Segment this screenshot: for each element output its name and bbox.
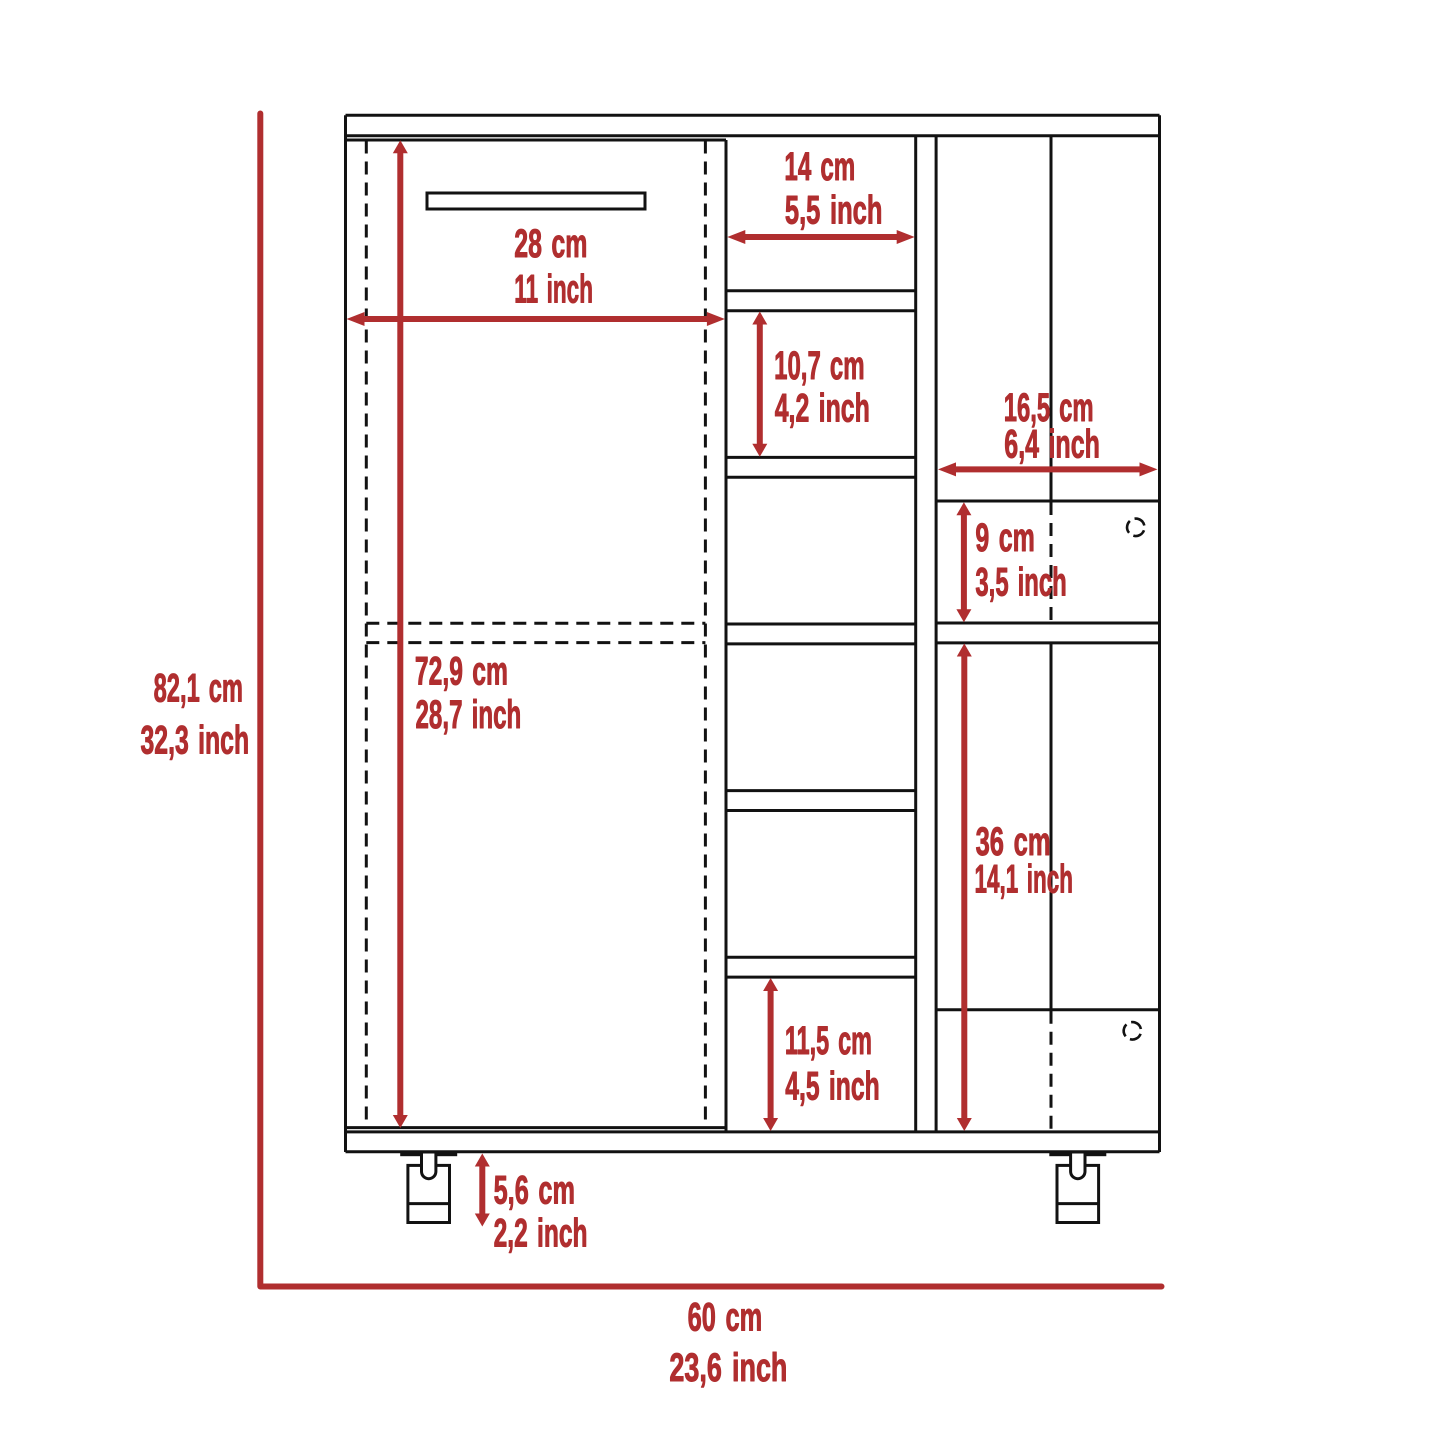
svg-text:14,1 inch: 14,1 inch xyxy=(975,857,1073,901)
svg-text:6,4 inch: 6,4 inch xyxy=(1004,423,1100,467)
svg-text:2,2 inch: 2,2 inch xyxy=(494,1212,588,1257)
svg-text:4,2 inch: 4,2 inch xyxy=(775,387,870,431)
svg-text:14 cm: 14 cm xyxy=(784,145,855,190)
svg-text:28 cm: 28 cm xyxy=(514,222,587,266)
svg-text:11 inch: 11 inch xyxy=(514,267,593,311)
svg-text:28,7 inch: 28,7 inch xyxy=(416,693,522,738)
svg-text:5,6 cm: 5,6 cm xyxy=(494,1169,575,1213)
svg-text:9 cm: 9 cm xyxy=(975,516,1034,560)
svg-text:82,1 cm: 82,1 cm xyxy=(154,665,243,710)
svg-text:32,3 inch: 32,3 inch xyxy=(141,719,250,763)
svg-text:11,5 cm: 11,5 cm xyxy=(785,1018,872,1063)
svg-text:10,7 cm: 10,7 cm xyxy=(774,343,864,388)
svg-text:4,5 inch: 4,5 inch xyxy=(785,1065,879,1110)
svg-text:72,9 cm: 72,9 cm xyxy=(415,649,508,694)
svg-text:23,6 inch: 23,6 inch xyxy=(669,1346,787,1391)
svg-text:3,5 inch: 3,5 inch xyxy=(975,559,1066,604)
svg-text:60 cm: 60 cm xyxy=(688,1296,763,1340)
svg-text:5,5 inch: 5,5 inch xyxy=(785,189,883,233)
